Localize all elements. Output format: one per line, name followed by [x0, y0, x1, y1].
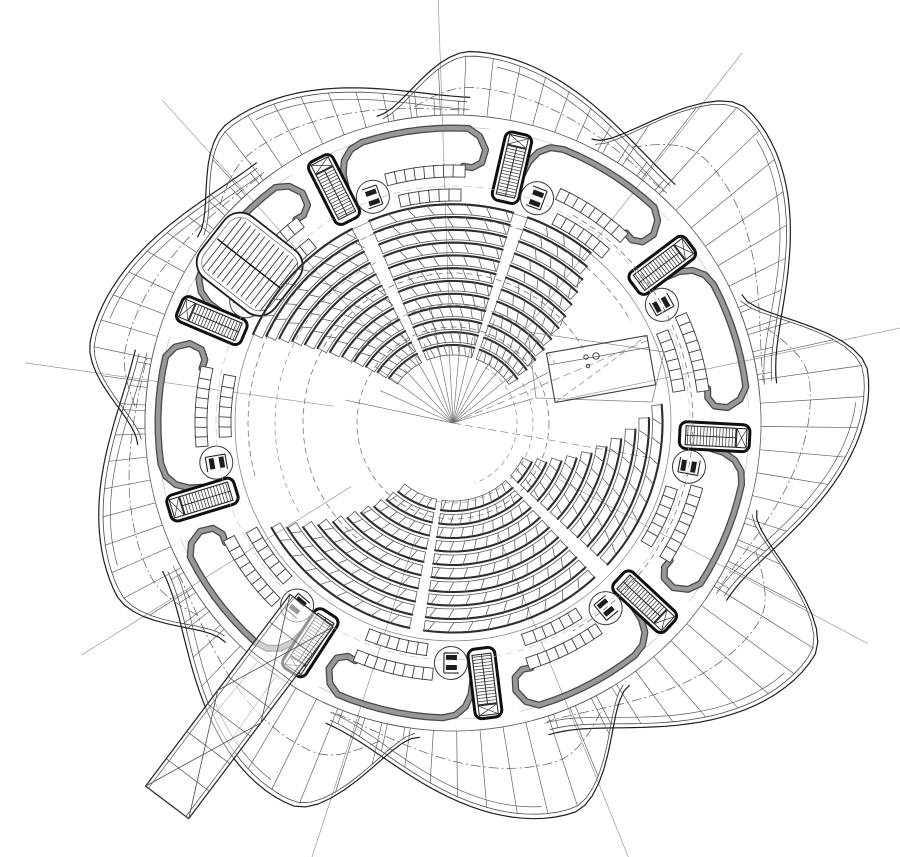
seat-divider-tick	[378, 352, 387, 357]
seat-divider-tick	[463, 554, 466, 564]
petal-panel-line	[717, 581, 730, 589]
seat-divider-tick	[398, 517, 406, 524]
seat-divider-tick	[413, 234, 421, 243]
seat-divider-tick	[349, 347, 359, 350]
petal-panel-line	[457, 731, 458, 797]
seat-divider-tick	[578, 579, 579, 591]
seat-divider-tick	[451, 345, 453, 355]
seat-divider-tick	[332, 307, 343, 310]
seat-row-block	[348, 511, 426, 562]
rostrum-desk	[546, 336, 655, 403]
seat-divider-tick	[450, 515, 453, 525]
seat-divider-tick	[396, 239, 405, 247]
seat-divider-tick	[548, 567, 549, 578]
seat-divider-tick	[367, 279, 376, 285]
seat-divider-tick	[373, 322, 382, 328]
rostrum-diagonal	[546, 336, 655, 403]
seat-divider-tick	[557, 276, 559, 287]
seat-divider-tick	[470, 513, 471, 523]
seat-divider-tick	[336, 592, 347, 597]
segment-boundary-line	[25, 363, 334, 406]
seat-divider-tick	[439, 528, 444, 538]
lift-circle	[197, 444, 235, 482]
seat-divider-tick	[366, 577, 376, 583]
seat-divider-tick	[442, 501, 446, 511]
seat-divider-tick	[496, 329, 498, 339]
seat-divider-tick	[503, 500, 506, 510]
corridor-wall	[343, 128, 485, 190]
seat-divider-tick	[291, 532, 303, 533]
seat-divider-tick	[403, 263, 411, 271]
seat-divider-tick	[297, 289, 309, 291]
seat-divider-tick	[652, 438, 661, 445]
drawing-canvas	[0, 0, 900, 857]
petal-panel-line	[691, 159, 775, 228]
seat-divider-tick	[496, 345, 499, 355]
seat-divider-tick	[442, 333, 446, 343]
seat-divider-tick	[388, 214, 397, 222]
petal-panel-line	[746, 320, 777, 330]
seat-divider-tick	[537, 278, 538, 289]
seat-divider-tick	[518, 328, 521, 338]
petal-panel-line	[104, 480, 150, 489]
seat-divider-tick	[597, 518, 602, 528]
petal-panel-line	[760, 450, 846, 458]
petal-panel-line	[526, 722, 548, 814]
petal-panel-line	[403, 727, 405, 739]
seat-divider-tick	[402, 576, 410, 584]
seat-divider-tick	[409, 359, 416, 366]
seat-divider-tick	[410, 222, 418, 231]
seat-divider-tick	[450, 332, 453, 342]
seat-divider-tick	[338, 252, 349, 257]
seat-divider-tick	[488, 508, 489, 518]
seat-divider-tick	[371, 609, 381, 616]
seat-divider-tick	[344, 279, 354, 284]
seat-divider-tick	[309, 275, 320, 278]
seat-divider-tick	[517, 312, 519, 323]
lift-circle	[434, 646, 467, 679]
seat-divider-tick	[535, 248, 536, 260]
seat-divider-tick	[650, 457, 659, 465]
seat-divider-tick	[469, 321, 470, 331]
petal-panel-line	[439, 68, 441, 115]
seat-divider-tick	[385, 541, 394, 548]
petal-panel-line	[753, 347, 774, 352]
seat-divider-tick	[449, 582, 454, 592]
petal-panel-line	[687, 624, 769, 694]
petal-panel-line	[207, 224, 214, 230]
seat-divider-tick	[605, 530, 610, 541]
petal-panel-line	[577, 108, 591, 141]
seat-divider-tick	[375, 337, 384, 342]
petal-panel-line	[179, 592, 196, 603]
seat-divider-tick	[618, 473, 626, 481]
seat-divider-tick	[615, 515, 621, 525]
seat-divider-tick	[407, 275, 414, 283]
seat-divider-tick	[463, 256, 467, 266]
seat-divider-tick	[516, 469, 523, 477]
seat-divider-tick	[359, 558, 369, 564]
petal-panel-line	[570, 708, 598, 777]
seat-divider-tick	[493, 520, 494, 531]
seat-divider-tick	[431, 595, 438, 604]
seat-row-block	[384, 243, 503, 266]
seat-divider-tick	[419, 496, 425, 504]
seat-divider-tick	[430, 231, 437, 240]
seat-divider-tick	[434, 568, 440, 577]
seat-divider-tick	[392, 529, 400, 536]
seat-row-front-edge	[507, 266, 572, 312]
seat-divider-tick	[545, 600, 546, 612]
seat-divider-tick	[542, 316, 546, 326]
rostrum-layer	[528, 332, 664, 402]
seat-divider-tick	[285, 304, 297, 305]
seat-row-block	[404, 294, 489, 313]
seat-row-back-edge	[305, 274, 376, 344]
seat-divider-tick	[423, 511, 429, 520]
seat-divider-tick	[449, 294, 453, 304]
seat-divider-tick	[510, 494, 514, 504]
petal-panel-line	[111, 547, 170, 573]
seat-divider-tick	[466, 595, 471, 606]
seat-divider-tick	[464, 243, 469, 253]
center-spoke	[453, 323, 462, 423]
petal-panel-line	[105, 525, 163, 545]
seat-divider-tick	[332, 289, 343, 293]
seat-divider-tick	[461, 528, 464, 538]
center-spoke	[405, 370, 453, 424]
seat-divider-tick	[433, 257, 439, 266]
seat-divider-tick	[387, 571, 396, 578]
petal-panel-line	[757, 372, 772, 374]
seat-divider-tick	[481, 579, 484, 590]
seat-divider-tick	[580, 460, 588, 467]
seat-divider-tick	[392, 226, 401, 234]
seat-row-block	[389, 255, 499, 277]
seat-divider-tick	[447, 230, 453, 240]
seat-divider-tick	[549, 287, 551, 298]
seat-divider-tick	[428, 219, 435, 228]
seat-divider-tick	[517, 583, 519, 594]
seat-divider-tick	[565, 463, 573, 470]
seat-divider-tick	[550, 464, 558, 471]
seat-divider-tick	[520, 462, 527, 469]
seat-divider-tick	[312, 537, 323, 539]
seat-divider-tick	[367, 345, 377, 349]
seat-divider-tick	[415, 247, 422, 256]
petal-panel-line	[300, 709, 338, 804]
seat-divider-tick	[496, 504, 498, 514]
seat-divider-tick	[646, 475, 654, 484]
seat-divider-tick	[588, 531, 592, 542]
seat-divider-tick	[383, 315, 392, 321]
seat-divider-tick	[418, 524, 424, 533]
petal-panel-line	[758, 366, 862, 381]
seat-divider-tick	[607, 463, 615, 471]
seat-divider-tick	[623, 499, 630, 509]
seat-row-block	[511, 458, 532, 483]
seat-divider-tick	[541, 237, 542, 249]
seat-divider-tick	[356, 338, 366, 342]
seat-divider-tick	[639, 430, 649, 437]
seat-row-block	[333, 516, 423, 575]
seat-divider-tick	[432, 581, 438, 590]
petal-panel-line	[671, 641, 739, 709]
petal-panel-line	[612, 687, 618, 697]
seat-divider-tick	[652, 419, 662, 425]
seat-divider-tick	[610, 448, 619, 455]
seat-divider-tick	[561, 557, 563, 568]
seat-divider-tick	[465, 581, 469, 591]
seat-divider-tick	[360, 353, 370, 356]
seat-divider-tick	[580, 245, 581, 257]
petal-parapet-line	[330, 712, 541, 807]
seat-divider-tick	[441, 514, 445, 524]
seat-divider-tick	[508, 558, 509, 569]
seat-divider-tick	[451, 501, 454, 511]
seat-divider-tick	[391, 324, 399, 331]
seat-divider-tick	[564, 266, 565, 278]
segment-boundary-line	[438, 0, 449, 303]
seat-row-back-edge	[389, 255, 499, 268]
seat-divider-tick	[623, 528, 628, 539]
seat-divider-tick	[366, 546, 376, 552]
seat-divider-tick	[555, 484, 562, 493]
seat-divider-tick	[544, 267, 545, 278]
seat-divider-tick	[323, 528, 334, 531]
seat-divider-tick	[545, 473, 552, 481]
seat-divider-tick	[448, 609, 454, 619]
seat-divider-tick	[390, 615, 399, 623]
petal-panel-line	[128, 272, 173, 293]
petal-panel-line	[746, 518, 787, 531]
petal-panel-line	[510, 66, 520, 121]
seat-divider-tick	[553, 547, 555, 558]
seat-divider-tick	[534, 325, 538, 335]
seat-divider-tick	[450, 319, 453, 329]
seat-divider-tick	[353, 305, 363, 310]
seat-divider-tick	[580, 494, 586, 503]
seat-divider-tick	[560, 296, 563, 307]
seat-divider-tick	[408, 521, 415, 529]
seat-divider-tick	[407, 209, 416, 218]
seat-divider-tick	[460, 514, 462, 524]
seat-divider-tick	[591, 468, 599, 476]
seat-divider-tick	[396, 500, 404, 507]
seat-divider-tick	[430, 349, 435, 358]
petal-panel-line	[147, 251, 185, 272]
seat-row-back-edge	[330, 297, 387, 352]
petal-panel-line	[409, 95, 412, 118]
seat-divider-tick	[450, 542, 454, 552]
seat-divider-tick	[346, 549, 356, 554]
petal-panel-line	[641, 107, 697, 179]
seat-divider-tick	[404, 489, 412, 496]
petal-panel-line	[130, 385, 148, 387]
seat-divider-tick	[536, 526, 539, 537]
petal-panel-line	[714, 586, 813, 648]
seat-divider-tick	[334, 539, 345, 543]
lift-symbol-right	[446, 665, 457, 670]
seat-divider-tick	[431, 244, 438, 253]
seat-divider-tick	[333, 325, 344, 328]
seat-divider-tick	[394, 354, 402, 360]
seat-divider-tick	[448, 623, 455, 633]
seat-divider-tick	[383, 330, 392, 336]
seat-divider-tick	[511, 511, 513, 521]
seat-divider-tick	[314, 559, 325, 562]
seat-divider-tick	[564, 494, 570, 503]
seat-row-back-edge	[548, 458, 577, 509]
seat-divider-tick	[312, 255, 324, 259]
seat-row-front-edge	[389, 354, 422, 384]
seat-divider-tick	[376, 596, 385, 603]
petal-panel-line	[137, 362, 151, 365]
seat-divider-tick	[622, 457, 631, 465]
seat-divider-tick	[526, 533, 528, 544]
center-spoke	[453, 354, 494, 423]
seat-divider-tick	[501, 318, 502, 329]
seat-divider-tick	[279, 540, 291, 541]
seat-divider-tick	[351, 569, 361, 574]
seat-divider-tick	[602, 478, 610, 486]
spiral-guide-arc	[275, 262, 378, 512]
seat-divider-tick	[449, 281, 453, 291]
seat-divider-tick	[513, 295, 514, 306]
seat-divider-tick	[515, 540, 516, 551]
seat-divider-tick	[522, 351, 527, 360]
gallery-seat	[222, 374, 236, 388]
seat-divider-tick	[613, 488, 620, 497]
seat-divider-tick	[629, 483, 636, 492]
seat-divider-tick	[337, 341, 348, 344]
center-spoke	[380, 391, 453, 424]
seat-divider-tick	[399, 251, 407, 259]
seat-divider-tick	[450, 307, 454, 317]
seat-divider-tick	[405, 505, 412, 513]
seat-divider-tick	[328, 243, 339, 248]
seat-divider-tick	[494, 360, 498, 369]
petal-panel-line	[214, 625, 221, 631]
seat-divider-tick	[468, 622, 474, 633]
seat-row-block	[361, 506, 428, 549]
seat-divider-tick	[570, 568, 572, 580]
petal-panel-line	[705, 191, 783, 246]
seat-divider-tick	[461, 294, 464, 304]
seat-divider-tick	[389, 512, 397, 518]
seat-divider-tick	[423, 284, 429, 293]
seat-divider-tick	[530, 290, 531, 301]
seat-divider-tick	[512, 570, 513, 581]
seat-divider-tick	[508, 528, 509, 539]
seat-divider-tick	[404, 363, 412, 369]
seat-divider-tick	[581, 518, 586, 528]
seat-divider-tick	[480, 245, 484, 256]
seat-row-block	[389, 354, 422, 384]
seat-divider-tick	[484, 298, 485, 309]
seat-divider-tick	[374, 305, 383, 311]
seat-divider-tick	[343, 314, 353, 318]
seat-divider-tick	[535, 464, 543, 471]
petal-panel-line	[701, 605, 794, 674]
seat-divider-tick	[462, 281, 466, 291]
petal-panel-line	[636, 671, 674, 722]
petal-panel-line	[464, 56, 466, 115]
seat-divider-tick	[479, 566, 482, 577]
seat-divider-tick	[393, 373, 402, 378]
seat-row-front-edge	[560, 446, 606, 528]
seat-divider-tick	[360, 589, 370, 595]
seat-divider-tick	[441, 320, 445, 330]
seat-divider-tick	[589, 505, 595, 515]
center-spoke	[453, 337, 473, 423]
seat-divider-tick	[463, 269, 467, 279]
seat-divider-tick	[427, 206, 435, 215]
seat-divider-tick	[467, 333, 468, 343]
seat-divider-tick	[527, 515, 530, 525]
seat-divider-tick	[497, 575, 499, 586]
spiral-guide-arc	[475, 368, 517, 484]
seat-divider-tick	[568, 286, 571, 297]
seat-divider-tick	[502, 516, 503, 527]
petal-panel-line	[480, 730, 487, 808]
seating-bank-upper	[253, 204, 591, 384]
seat-divider-tick	[448, 243, 454, 253]
seat-divider-tick	[502, 484, 506, 494]
seat-divider-tick	[328, 570, 339, 574]
seat-divider-tick	[358, 270, 368, 276]
seat-divider-tick	[540, 556, 541, 567]
lift-circle-outline	[197, 444, 235, 482]
seat-row-block	[560, 446, 606, 528]
seat-divider-tick	[385, 345, 394, 351]
seat-divider-tick	[564, 234, 565, 246]
seat-divider-tick	[363, 313, 373, 318]
seat-divider-tick	[487, 285, 489, 296]
seat-divider-tick	[300, 327, 311, 328]
seat-row-back-edge	[389, 354, 417, 379]
petal-panel-line	[393, 112, 395, 121]
seat-divider-tick	[540, 482, 546, 491]
seat-divider-tick	[436, 555, 441, 564]
seat-divider-tick	[637, 448, 646, 455]
seat-divider-tick	[625, 440, 634, 447]
seat-divider-tick	[493, 562, 495, 573]
seat-divider-tick	[354, 538, 364, 543]
petal-panel-line	[248, 115, 282, 167]
seat-row-front-edge	[303, 521, 417, 601]
corridor-wall-fill	[343, 128, 485, 190]
seat-divider-tick	[398, 546, 406, 554]
seat-divider-tick	[449, 555, 453, 565]
seat-divider-tick	[381, 523, 390, 529]
seat-divider-tick	[493, 260, 495, 271]
seat-divider-tick	[348, 261, 358, 266]
seat-divider-tick	[483, 524, 484, 535]
seat-divider-tick	[634, 466, 642, 474]
seat-divider-tick	[392, 559, 400, 566]
seat-divider-tick	[475, 283, 478, 294]
petal-panel-line	[760, 397, 864, 404]
seat-divider-tick	[388, 360, 397, 365]
seat-row-back-edge	[430, 548, 568, 592]
seat-divider-tick	[533, 308, 536, 319]
seat-divider-tick	[557, 505, 562, 515]
hemicycle-seating-layer	[253, 204, 662, 632]
seat-row-front-edge	[409, 311, 486, 325]
petal-panel-line	[676, 130, 760, 210]
